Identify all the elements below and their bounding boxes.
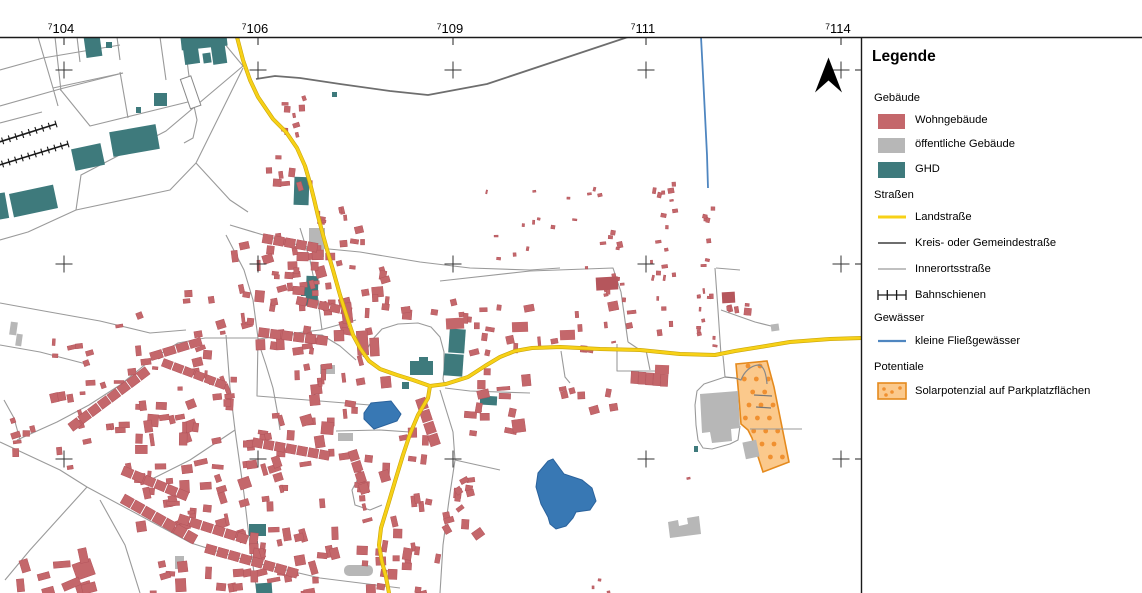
svg-text:7114: 7114: [825, 21, 850, 36]
svg-text:7106: 7106: [242, 21, 268, 36]
svg-text:7109: 7109: [437, 21, 463, 36]
svg-text:7104: 7104: [48, 21, 74, 36]
